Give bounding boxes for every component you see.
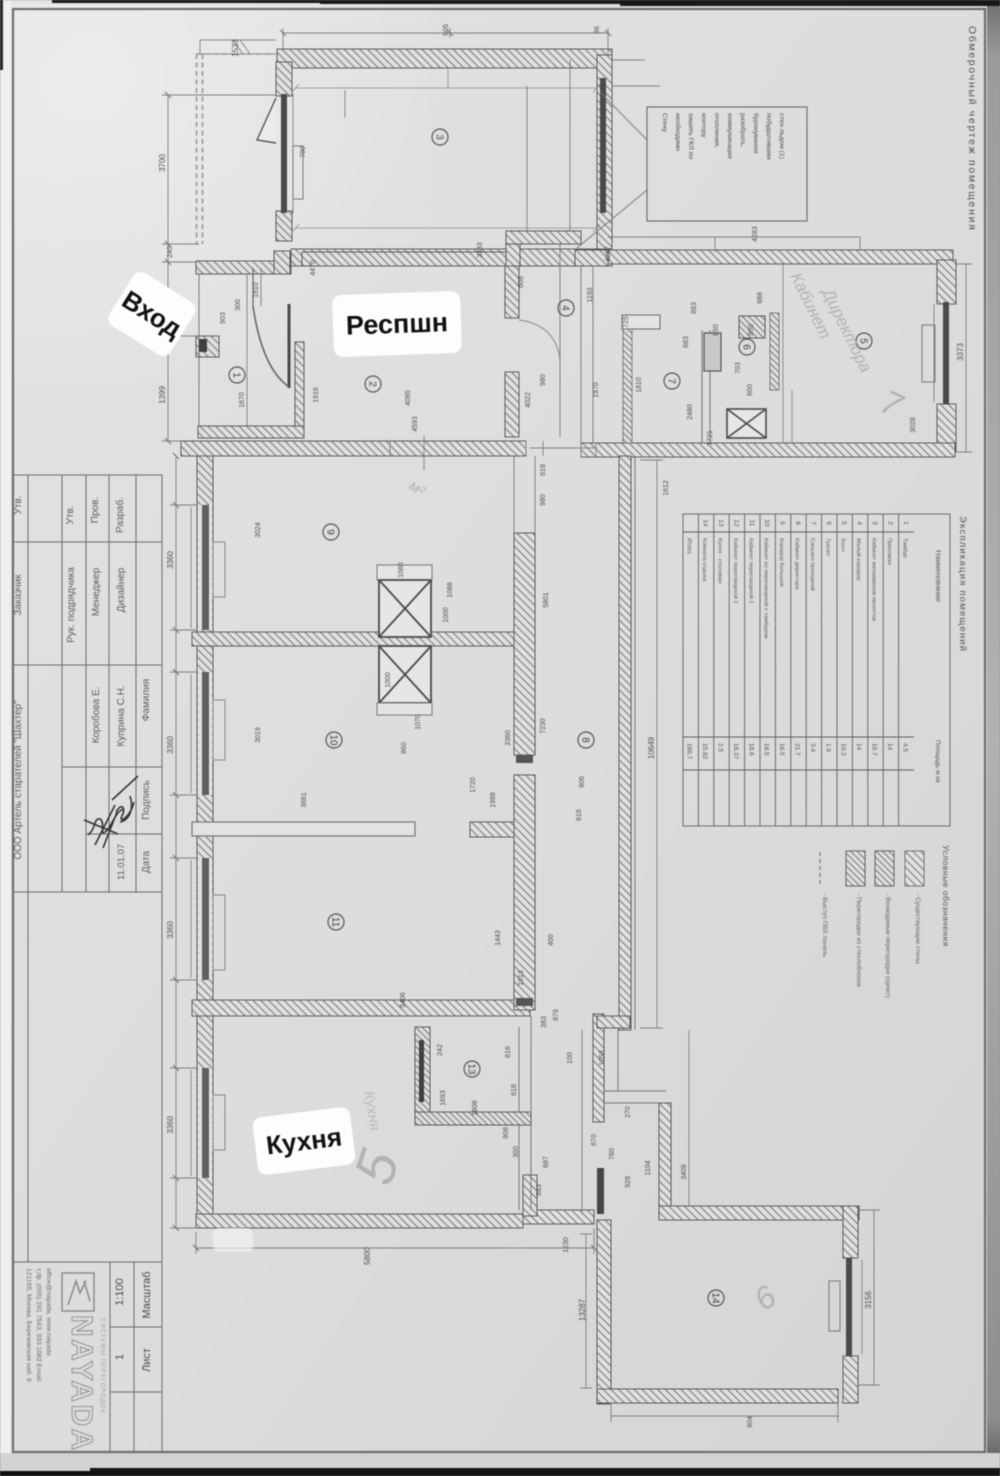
svg-text:Кабинет директора: Кабинет директора bbox=[794, 538, 800, 590]
svg-text:9: 9 bbox=[325, 529, 336, 535]
svg-text:Площадь м.кв: Площадь м.кв bbox=[934, 740, 941, 783]
svg-text:7230: 7230 bbox=[540, 718, 547, 734]
svg-text:3373: 3373 bbox=[956, 343, 965, 361]
svg-text:Дата: Дата bbox=[141, 850, 152, 873]
svg-text:908: 908 bbox=[503, 1127, 510, 1139]
svg-text:зашить ГКЛ по: зашить ГКЛ по bbox=[687, 113, 694, 159]
svg-text:Коридор большой: Коридор большой bbox=[778, 538, 785, 586]
svg-text:6: 6 bbox=[741, 344, 752, 350]
svg-text:4287: 4287 bbox=[605, 246, 612, 262]
svg-text:Кабинет переговорной 1: Кабинет переговорной 1 bbox=[747, 538, 754, 604]
svg-text:Итого: Итого bbox=[686, 538, 692, 554]
svg-text:14: 14 bbox=[702, 519, 709, 527]
svg-text:4593: 4593 bbox=[412, 416, 419, 432]
svg-text:4283: 4283 bbox=[752, 226, 759, 242]
svg-text:1070: 1070 bbox=[415, 714, 422, 730]
svg-text:1104: 1104 bbox=[645, 1160, 652, 1175]
svg-text:Холл: Холл bbox=[840, 538, 846, 552]
svg-text:1000: 1000 bbox=[385, 672, 392, 688]
svg-text:Обмерочный чертеж помещения: Обмерочный чертеж помещения bbox=[966, 26, 978, 232]
svg-text:Разраб.: Разраб. bbox=[114, 497, 126, 533]
svg-text:5: 5 bbox=[840, 521, 847, 525]
svg-text:18.6: 18.6 bbox=[747, 743, 754, 756]
svg-text:14: 14 bbox=[710, 1292, 721, 1304]
svg-text:Кабинет менеджеров проектов: Кабинет менеджеров проектов bbox=[871, 538, 877, 621]
svg-text:11: 11 bbox=[330, 917, 341, 928]
svg-text:Респшн: Респшн bbox=[345, 307, 448, 341]
svg-text:Менеджер: Менеджер bbox=[91, 567, 102, 616]
svg-text:1193: 1193 bbox=[587, 287, 594, 302]
svg-text:18.5: 18.5 bbox=[763, 743, 770, 756]
svg-text:2: 2 bbox=[367, 381, 378, 387]
svg-text:Экспликация помещений: Экспликация помещений bbox=[957, 516, 968, 652]
svg-text:1399: 1399 bbox=[158, 386, 167, 404]
svg-text:928: 928 bbox=[625, 1176, 632, 1188]
svg-text:5800: 5800 bbox=[363, 1247, 372, 1265]
svg-text:office@nayada, www.nayada: office@nayada, www.nayada bbox=[45, 1268, 52, 1356]
svg-text:3360: 3360 bbox=[166, 736, 175, 754]
svg-text:5406: 5406 bbox=[400, 992, 407, 1008]
svg-text:Стену: Стену bbox=[661, 113, 668, 132]
svg-text:3028: 3028 bbox=[910, 417, 917, 433]
svg-text:3019: 3019 bbox=[255, 727, 262, 743]
svg-text:15.82: 15.82 bbox=[701, 743, 708, 760]
svg-text:4.5: 4.5 bbox=[901, 743, 908, 752]
svg-text:905: 905 bbox=[443, 24, 450, 36]
svg-text:988: 988 bbox=[757, 292, 764, 304]
svg-text:1721: 1721 bbox=[707, 430, 714, 446]
svg-text:618: 618 bbox=[540, 464, 547, 476]
svg-text:670: 670 bbox=[591, 1134, 598, 1146]
svg-text:3: 3 bbox=[434, 134, 445, 140]
svg-text:725: 725 bbox=[623, 316, 630, 328]
svg-text:1088: 1088 bbox=[447, 582, 454, 598]
svg-text:5801: 5801 bbox=[543, 592, 550, 608]
svg-text:ООО Артель старателей "Шахтер": ООО Артель старателей "Шахтер" bbox=[13, 700, 24, 860]
svg-text:Куприна С.Н.: Куприна С.Н. bbox=[116, 685, 127, 746]
svg-text:Кухня - столовая: Кухня - столовая bbox=[717, 538, 723, 583]
svg-text:Тамбур: Тамбур bbox=[901, 538, 907, 558]
svg-text:893: 893 bbox=[691, 302, 698, 314]
svg-text:контору: контору bbox=[700, 113, 707, 138]
svg-text:1053: 1053 bbox=[599, 1050, 606, 1066]
svg-text:1: 1 bbox=[902, 521, 909, 525]
svg-text:400: 400 bbox=[548, 934, 555, 946]
svg-text:8: 8 bbox=[794, 521, 801, 525]
svg-text:1916: 1916 bbox=[313, 387, 320, 403]
svg-text:2: 2 bbox=[886, 521, 893, 525]
svg-text:9: 9 bbox=[779, 521, 786, 525]
svg-text:300: 300 bbox=[235, 299, 242, 311]
svg-text:7: 7 bbox=[666, 378, 677, 384]
svg-text:96: 96 bbox=[594, 26, 601, 34]
svg-text:разобрать,: разобрать, bbox=[739, 113, 747, 147]
svg-text:10: 10 bbox=[763, 519, 770, 527]
svg-text:Туалет: Туалет bbox=[824, 538, 830, 557]
svg-text:687: 687 bbox=[543, 1156, 550, 1168]
svg-text:1000: 1000 bbox=[443, 607, 450, 623]
svg-text:- Сущeствующие стены: - Сущeствующие стены bbox=[914, 893, 921, 964]
svg-text:1670: 1670 bbox=[239, 392, 246, 408]
svg-text:Кабинет из переговорной с тамб: Кабинет из переговорной с тамбуром bbox=[763, 538, 770, 639]
svg-text:13: 13 bbox=[717, 519, 724, 527]
svg-text:6: 6 bbox=[825, 521, 832, 525]
svg-text:Заказчик: Заказчик bbox=[13, 574, 24, 616]
svg-text:383: 383 bbox=[541, 1016, 548, 1028]
svg-text:186.7: 186.7 bbox=[686, 743, 693, 760]
svg-text:3156: 3156 bbox=[864, 1291, 873, 1309]
svg-text:побудштивами: побудштивами bbox=[765, 113, 773, 160]
svg-text:760: 760 bbox=[609, 1148, 616, 1160]
svg-text:1013: 1013 bbox=[518, 970, 525, 986]
svg-text:618: 618 bbox=[511, 1084, 518, 1096]
svg-text:16.37: 16.37 bbox=[732, 743, 739, 760]
svg-text:- Выступ ПВХ панель: - Выступ ПВХ панель bbox=[821, 893, 828, 958]
svg-text:16.5: 16.5 bbox=[778, 743, 785, 756]
svg-text:Подпись: Подпись bbox=[141, 780, 152, 820]
svg-text:616: 616 bbox=[576, 809, 583, 821]
svg-text:Кабинет переговорной 2: Кабинет переговорной 2 bbox=[732, 538, 739, 604]
svg-text:1610: 1610 bbox=[253, 282, 260, 298]
svg-text:683: 683 bbox=[536, 1184, 543, 1196]
svg-text:703: 703 bbox=[735, 362, 742, 374]
svg-text:300: 300 bbox=[513, 1146, 520, 1158]
svg-text:242: 242 bbox=[437, 1044, 444, 1056]
svg-text:2480: 2480 bbox=[687, 404, 694, 420]
svg-text:900: 900 bbox=[748, 324, 755, 336]
svg-text:Пров.: Пров. bbox=[90, 497, 101, 523]
svg-text:4085: 4085 bbox=[405, 390, 412, 406]
svg-text:1693: 1693 bbox=[440, 1090, 447, 1106]
svg-text:4: 4 bbox=[856, 521, 863, 525]
svg-text:903: 903 bbox=[220, 312, 227, 324]
svg-text:- Перегородки из стеклоблоков: - Перегородки из стеклоблоков bbox=[855, 893, 863, 988]
svg-text:Утв.: Утв. bbox=[65, 505, 76, 524]
svg-text:860: 860 bbox=[401, 742, 408, 754]
svg-text:683: 683 bbox=[683, 336, 690, 348]
svg-text:коммуникации: коммуникации bbox=[726, 113, 733, 159]
svg-text:Фамилия: Фамилия bbox=[141, 679, 152, 721]
svg-text:10: 10 bbox=[328, 734, 339, 746]
svg-text:необходимо: необходимо bbox=[674, 113, 682, 151]
svg-text:Рук. подрядчика: Рук. подрядчика bbox=[66, 567, 77, 643]
svg-text:4022: 4022 bbox=[525, 392, 532, 408]
svg-text:879: 879 bbox=[553, 1009, 560, 1021]
svg-text:Малый коридор: Малый коридор bbox=[855, 538, 862, 581]
svg-text:1988: 1988 bbox=[490, 792, 497, 808]
svg-text:616: 616 bbox=[505, 1046, 512, 1058]
svg-text:1:100: 1:100 bbox=[114, 1278, 126, 1306]
svg-text:1: 1 bbox=[231, 372, 242, 378]
svg-text:Комната отдыха: Комната отдыха bbox=[701, 538, 707, 582]
svg-text:21.7: 21.7 bbox=[794, 743, 801, 756]
svg-text:11: 11 bbox=[748, 520, 755, 527]
svg-text:600: 600 bbox=[747, 384, 754, 396]
svg-text:стен льдом (1): стен льдом (1) bbox=[778, 113, 785, 159]
svg-text:3360: 3360 bbox=[166, 921, 175, 939]
svg-text:700: 700 bbox=[300, 146, 307, 158]
svg-text:СИСТЕМЫ ПЕРЕГОРОДОК: СИСТЕМЫ ПЕРЕГОРОДОК bbox=[99, 1318, 105, 1414]
svg-text:1808: 1808 bbox=[472, 1100, 479, 1116]
svg-text:7: 7 bbox=[809, 521, 816, 525]
svg-text:11.01.07: 11.01.07 bbox=[116, 844, 127, 880]
svg-text:13287: 13287 bbox=[578, 1298, 587, 1321]
svg-text:1612: 1612 bbox=[663, 480, 670, 496]
svg-text:980: 980 bbox=[540, 494, 547, 506]
svg-text:Санузел проходной: Санузел проходной bbox=[809, 538, 816, 591]
svg-text:2.5: 2.5 bbox=[717, 743, 724, 752]
svg-text:1.9: 1.9 bbox=[824, 743, 831, 752]
svg-text:4: 4 bbox=[560, 305, 571, 311]
svg-text:14: 14 bbox=[855, 743, 862, 751]
svg-text:980: 980 bbox=[540, 374, 547, 386]
svg-text:1443: 1443 bbox=[495, 930, 502, 946]
svg-text:Дизайнер: Дизайнер bbox=[116, 567, 127, 612]
svg-text:1810: 1810 bbox=[636, 377, 643, 393]
svg-text:1720: 1720 bbox=[470, 777, 477, 793]
svg-text:3408: 3408 bbox=[681, 1164, 688, 1180]
svg-text:Коробова Е.: Коробова Е. bbox=[90, 687, 102, 744]
svg-text:12: 12 bbox=[732, 519, 739, 527]
svg-text:3360: 3360 bbox=[166, 551, 175, 569]
svg-text:3700: 3700 bbox=[158, 154, 167, 172]
svg-text:100: 100 bbox=[567, 1052, 574, 1064]
svg-text:121165, Москва, Березовская на: 121165, Москва, Березовская наб. 6 bbox=[25, 1268, 33, 1382]
svg-text:3360: 3360 bbox=[505, 730, 512, 746]
svg-text:Лист: Лист bbox=[141, 1348, 153, 1372]
svg-text:270: 270 bbox=[625, 1106, 632, 1118]
svg-text:906: 906 bbox=[579, 776, 586, 788]
svg-text:Условные обозначения: Условные обозначения bbox=[941, 845, 951, 947]
svg-text:3360: 3360 bbox=[166, 1116, 175, 1134]
svg-text:608: 608 bbox=[518, 276, 525, 288]
svg-text:3383: 3383 bbox=[477, 242, 484, 258]
svg-text:850: 850 bbox=[713, 324, 720, 336]
svg-text:8: 8 bbox=[580, 737, 591, 743]
svg-text:Наименование: Наименование bbox=[934, 550, 943, 602]
svg-text:Масштаб: Масштаб bbox=[141, 1271, 153, 1318]
svg-text:Прихожая: Прихожая bbox=[886, 538, 892, 565]
svg-text:1533: 1533 bbox=[231, 39, 240, 57]
svg-text:3024: 3024 bbox=[255, 522, 262, 538]
svg-text:10649: 10649 bbox=[647, 736, 656, 759]
svg-text:10.3: 10.3 bbox=[840, 743, 847, 756]
svg-text:904: 904 bbox=[747, 1416, 754, 1428]
svg-text:19.7: 19.7 bbox=[871, 743, 878, 756]
svg-text:NAYADA: NAYADA bbox=[65, 1315, 98, 1453]
svg-text:1080: 1080 bbox=[398, 562, 405, 578]
svg-text:1: 1 bbox=[114, 1354, 126, 1360]
svg-text:240: 240 bbox=[167, 246, 174, 258]
svg-text:- Возводимые перегородки (орли: - Возводимые перегородки (орлит) bbox=[884, 893, 891, 998]
svg-text:буронування: буронування bbox=[752, 113, 760, 154]
svg-text:Утв.: Утв. bbox=[13, 495, 24, 514]
svg-text:отопления,: отопления, bbox=[713, 113, 720, 148]
svg-text:1230: 1230 bbox=[563, 1237, 570, 1253]
svg-text:3661: 3661 bbox=[301, 792, 308, 808]
svg-text:14: 14 bbox=[886, 743, 893, 751]
svg-text:3: 3 bbox=[871, 521, 878, 525]
svg-text:3.4: 3.4 bbox=[809, 743, 816, 752]
svg-text:4470: 4470 bbox=[310, 260, 317, 276]
svg-text:13: 13 bbox=[466, 1063, 477, 1075]
svg-text:1970: 1970 bbox=[593, 382, 600, 398]
svg-text:т./ф. (095) 291 7543, 933 1082: т./ф. (095) 291 7543, 933 1082 Email: bbox=[35, 1268, 42, 1383]
